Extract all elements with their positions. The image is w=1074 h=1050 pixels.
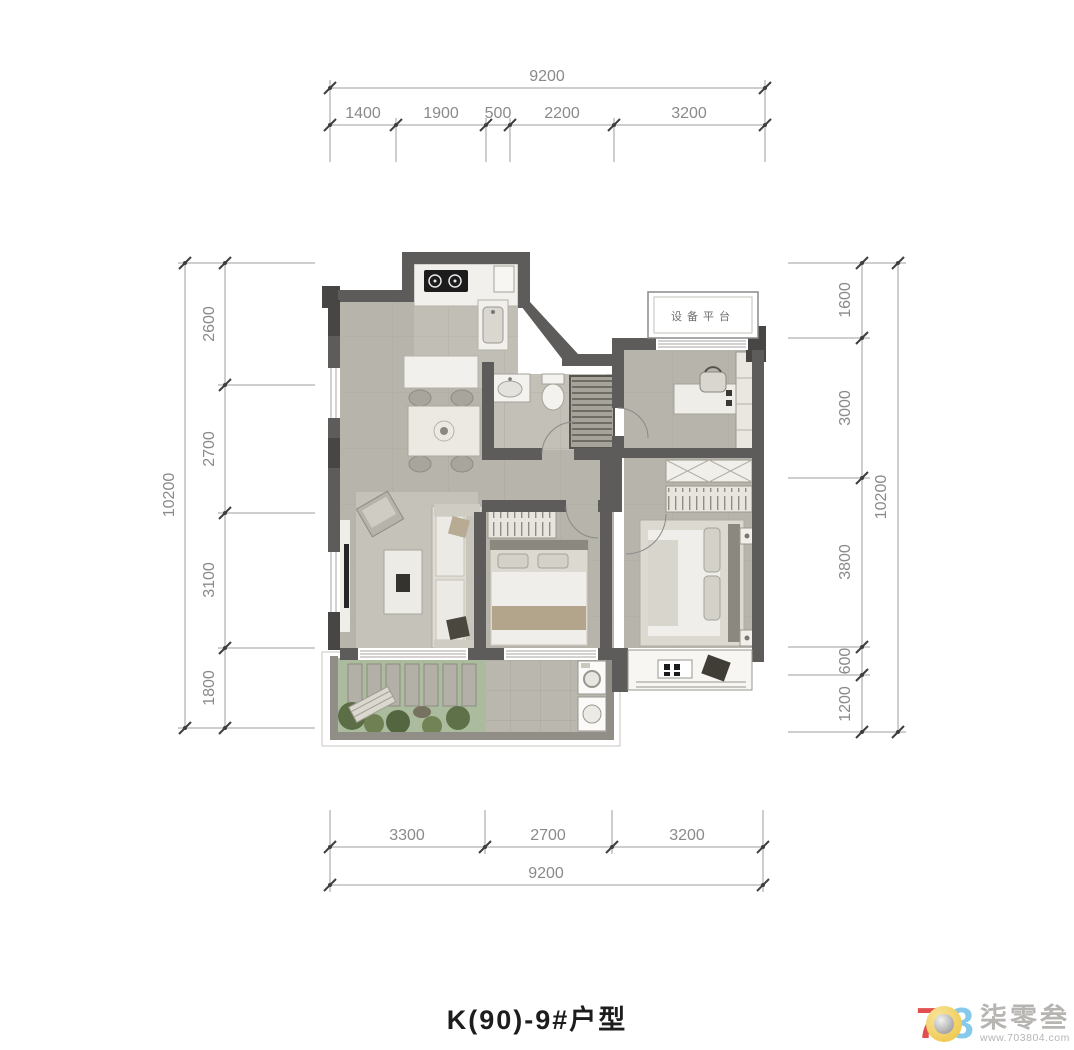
toilet: [542, 374, 564, 410]
dim-right-seg-4: 600: [837, 648, 854, 675]
balcony-door: [358, 648, 468, 660]
bay-tray: [658, 660, 692, 678]
bay-window: [628, 650, 752, 690]
left-window-1: [328, 368, 340, 418]
dim-right-seg-3: 3800: [837, 544, 854, 580]
logo-sphere-icon: [934, 1014, 954, 1034]
equipment-platform: 设备平台: [648, 292, 758, 338]
dim-left-seg-1: 2600: [201, 306, 218, 342]
dim-top-seg-1: 1400: [345, 105, 381, 122]
middle-bedroom-window: [504, 648, 598, 660]
dim-left-total: 10200: [161, 473, 178, 518]
dim-top-seg-2: 1900: [423, 105, 459, 122]
dim-top-seg-4: 2200: [544, 105, 580, 122]
stove: [424, 270, 468, 292]
kitchen-sink: [478, 300, 508, 350]
dim-top-seg-5: 3200: [671, 105, 707, 122]
dim-bottom-seg-1: 3300: [389, 827, 425, 844]
dim-left-seg-4: 1800: [201, 670, 218, 706]
coffee-table: [384, 550, 422, 614]
dim-left-seg-2: 2700: [201, 431, 218, 467]
dim-top-total: 9200: [529, 68, 565, 85]
platform-window: [656, 338, 748, 350]
balcony-wall-bottom: [330, 732, 614, 740]
master-bed: [640, 520, 744, 646]
bathroom-vanity: [490, 374, 530, 402]
washer: [578, 661, 606, 694]
left-window-2: [328, 552, 340, 612]
floorplan-image: 9200 1400 1900 500 2200 3200 3300 2700 3…: [0, 0, 1074, 1050]
equipment-platform-label: 设备平台: [671, 309, 735, 323]
laundry-sink: [578, 697, 606, 731]
middle-bed: [490, 540, 588, 646]
plan-title: K(90)-9#户型: [0, 998, 1074, 1037]
balcony-wall-left: [330, 656, 338, 740]
dim-right-seg-1: 1600: [837, 282, 854, 318]
master-wardrobe: [666, 486, 752, 512]
closet-shelves: [666, 460, 752, 482]
dim-right-seg-2: 3000: [837, 390, 854, 426]
dim-bottom-total: 9200: [528, 865, 564, 882]
watermark-url: www.703804.com: [980, 1033, 1070, 1044]
kitchen-appliance: [494, 266, 514, 292]
dim-bottom-seg-2: 2700: [530, 827, 566, 844]
shaft: [570, 376, 614, 448]
dining-area: [404, 356, 480, 472]
tv-console: [340, 520, 350, 632]
watermark: 7 3 柒零叁 www.703804.com: [916, 1002, 1070, 1046]
dim-right-seg-5: 1200: [837, 686, 854, 722]
logo-digit-zero-icon: [926, 1006, 962, 1042]
dim-right-total: 10200: [873, 475, 890, 520]
study-wardrobe: [736, 352, 754, 456]
tv: [344, 544, 349, 608]
kitchen-island: [404, 356, 478, 388]
watermark-name: 柒零叁: [980, 1004, 1070, 1032]
middle-wardrobe: [488, 508, 556, 538]
dim-top-seg-3: 500: [485, 105, 512, 122]
living-room: [340, 491, 482, 656]
floorplan-svg: 9200 1400 1900 500 2200 3200 3300 2700 3…: [0, 0, 1074, 1050]
dim-left-seg-3: 3100: [201, 562, 218, 598]
watermark-logo-icon: 7 3: [916, 1002, 974, 1046]
headboard: [728, 524, 740, 642]
headboard: [490, 540, 588, 550]
balcony: [322, 652, 620, 746]
dim-bottom-seg-3: 3200: [669, 827, 705, 844]
